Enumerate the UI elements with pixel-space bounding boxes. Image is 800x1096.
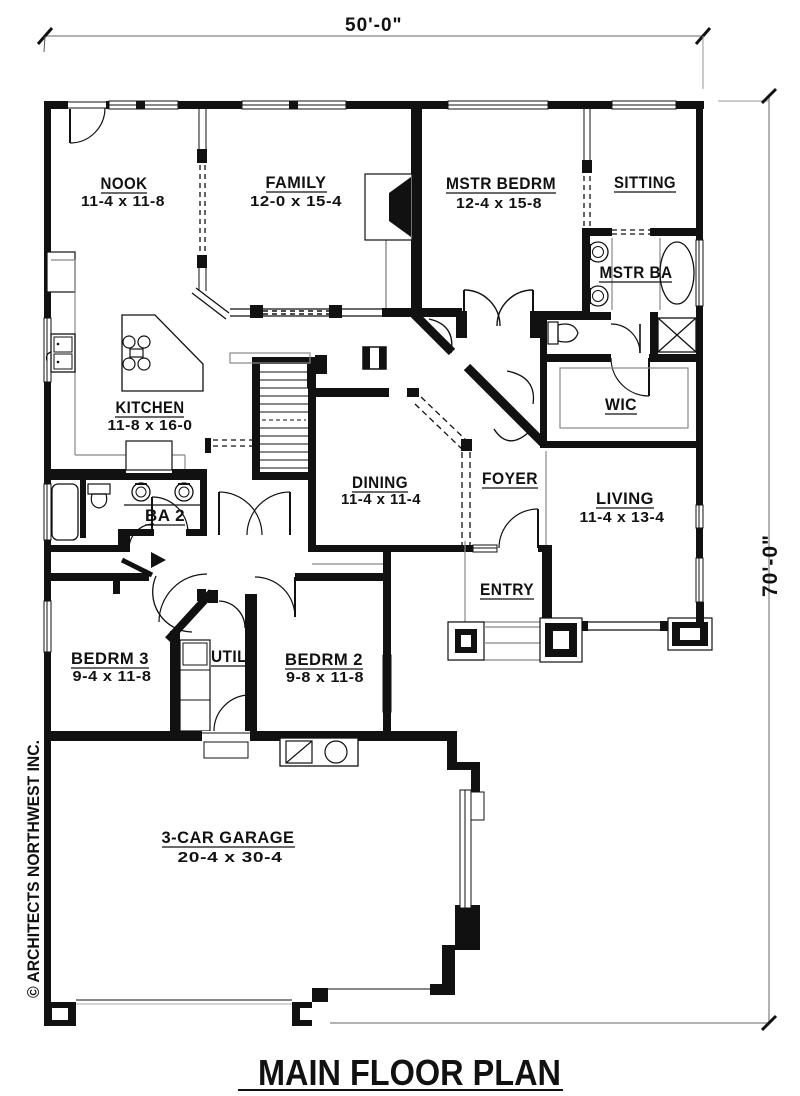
svg-text:ENTRY: ENTRY: [480, 580, 534, 599]
svg-text:11-4 x 11-4: 11-4 x 11-4: [341, 491, 421, 508]
svg-text:LIVING: LIVING: [596, 489, 654, 508]
svg-text:20-4 x 30-4: 20-4 x 30-4: [178, 849, 283, 866]
svg-text:FOYER: FOYER: [482, 469, 538, 488]
svg-text:SITTING: SITTING: [614, 173, 676, 192]
svg-text:BEDRM 2: BEDRM 2: [285, 650, 363, 669]
svg-text:UTIL: UTIL: [211, 647, 247, 666]
svg-text:BA 2: BA 2: [145, 506, 185, 525]
svg-text:NOOK: NOOK: [101, 174, 148, 193]
svg-text:50'-0": 50'-0": [345, 15, 403, 36]
svg-text:9-8 x 11-8: 9-8 x 11-8: [286, 669, 364, 686]
svg-text:BEDRM 3: BEDRM 3: [71, 649, 149, 668]
svg-text:12-4 x 15-8: 12-4 x 15-8: [456, 195, 542, 212]
svg-text:70'-0": 70'-0": [759, 534, 782, 597]
svg-text:KITCHEN: KITCHEN: [116, 398, 185, 417]
svg-text:FAMILY: FAMILY: [266, 173, 327, 192]
svg-text:12-0 x 15-4: 12-0 x 15-4: [250, 193, 342, 210]
svg-text:3-CAR GARAGE: 3-CAR GARAGE: [162, 828, 295, 847]
svg-text:© ARCHITECTS NORTHWEST INC.: © ARCHITECTS NORTHWEST INC.: [24, 740, 43, 998]
svg-text:DINING: DINING: [352, 473, 408, 492]
svg-text:MSTR BA: MSTR BA: [600, 263, 673, 282]
svg-text:11-4 x 11-8: 11-4 x 11-8: [81, 193, 165, 210]
svg-text:WIC: WIC: [605, 395, 637, 414]
svg-text:MAIN FLOOR PLAN: MAIN FLOOR PLAN: [258, 1052, 561, 1093]
svg-text:11-4 x 13-4: 11-4 x 13-4: [580, 509, 665, 526]
svg-text:MSTR BEDRM: MSTR BEDRM: [446, 174, 556, 193]
svg-text:9-4 x 11-8: 9-4 x 11-8: [73, 668, 152, 685]
svg-text:11-8 x 16-0: 11-8 x 16-0: [108, 417, 193, 434]
